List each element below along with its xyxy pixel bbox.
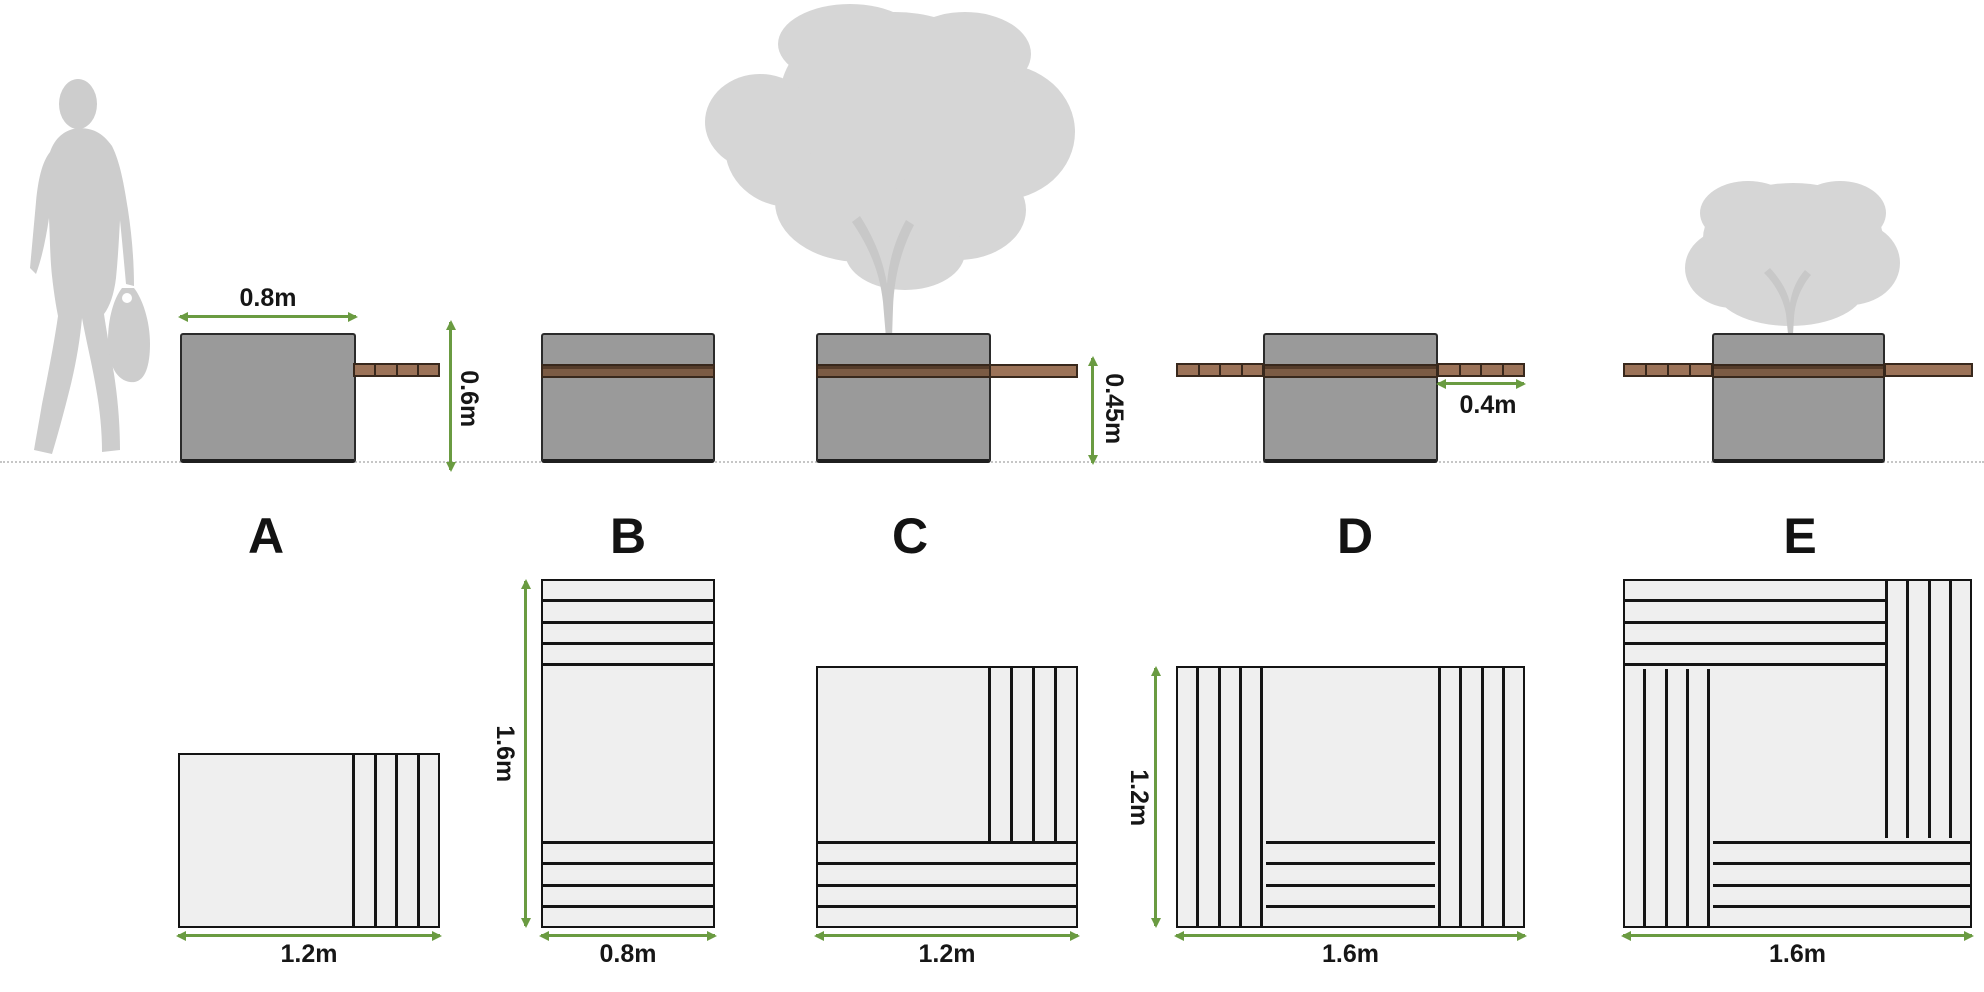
slat	[1643, 669, 1664, 926]
slat	[1667, 365, 1689, 375]
slat	[1686, 669, 1707, 926]
slat	[1178, 668, 1196, 926]
slat	[396, 365, 417, 375]
slat	[1625, 581, 1885, 599]
bench-e-left-extension	[1623, 363, 1713, 377]
slat	[543, 642, 713, 663]
planter-c-elevation	[816, 333, 991, 463]
dim-d-overhang-label: 0.4m	[1428, 392, 1548, 420]
slat	[1441, 668, 1459, 926]
slat	[543, 862, 713, 883]
dim-a-width-arrow	[180, 315, 356, 318]
slat	[1459, 365, 1481, 375]
slat	[1625, 621, 1885, 642]
option-label-b: B	[568, 511, 688, 561]
slat	[1266, 884, 1435, 905]
slat	[1625, 599, 1885, 620]
plan-d-bottom-bench-slats	[1266, 841, 1435, 926]
slat	[1196, 668, 1217, 926]
bench-d-left-extension	[1176, 363, 1264, 377]
slat	[818, 862, 1076, 883]
plan-b-top-bench-slats	[543, 581, 713, 666]
slat	[1219, 365, 1241, 375]
slat	[1054, 668, 1076, 841]
bench-e-elevation	[1712, 364, 1885, 378]
slat	[1665, 669, 1686, 926]
slat	[1439, 365, 1459, 375]
bench-a-elevation	[353, 363, 440, 377]
plan-a-bench-slats	[352, 755, 438, 926]
slat	[1239, 668, 1260, 926]
slat	[374, 755, 396, 926]
option-label-d: D	[1295, 511, 1415, 561]
slat	[1928, 581, 1949, 838]
dim-plan-c-width-arrow	[816, 934, 1078, 937]
plan-e-bottom-bench-slats	[1713, 841, 1970, 926]
slat	[1689, 365, 1711, 375]
slat	[543, 581, 713, 599]
dim-plan-b-height-label: 1.6m	[490, 709, 518, 799]
slat	[1625, 669, 1643, 926]
planter-b-elevation	[541, 333, 715, 463]
small-tree-silhouette	[1678, 168, 1906, 334]
plan-b	[541, 579, 715, 928]
bench-d-right-extension	[1437, 363, 1525, 377]
slat	[1241, 365, 1263, 375]
slat	[1502, 365, 1524, 375]
dim-plan-d-height-label: 1.2m	[1124, 753, 1152, 843]
plan-b-bottom-bench-slats	[543, 841, 713, 926]
dim-plan-e-width-arrow	[1623, 934, 1972, 937]
slat	[1032, 668, 1054, 841]
plan-d	[1176, 666, 1525, 928]
option-label-c: C	[850, 511, 970, 561]
slat	[1010, 668, 1032, 841]
slat	[1645, 365, 1667, 375]
slat	[543, 884, 713, 905]
dim-a-width-label: 0.8m	[180, 285, 356, 313]
plan-e-left-bench-slats	[1625, 669, 1710, 926]
dim-c-seat-height-label: 0.45m	[1099, 364, 1127, 454]
slat	[355, 755, 374, 926]
plan-e	[1623, 579, 1972, 928]
bench-b-elevation	[541, 364, 715, 378]
large-tree-silhouette	[700, 2, 1080, 338]
bench-c-extension	[989, 364, 1078, 378]
dim-c-seat-height-arrow	[1091, 358, 1094, 463]
option-label-a: A	[206, 511, 326, 561]
slat	[1480, 365, 1502, 375]
plan-c-right-bench-slats	[988, 668, 1076, 841]
slat	[543, 599, 713, 620]
dim-plan-d-width-arrow	[1176, 934, 1525, 937]
bench-e-right-extension	[1884, 363, 1973, 377]
scale-person-silhouette	[22, 78, 154, 462]
dim-plan-a-width-label: 1.2m	[178, 941, 440, 969]
bench-c-elevation	[816, 364, 991, 378]
slat	[1218, 668, 1239, 926]
slat	[1906, 581, 1927, 838]
dim-plan-d-height-arrow	[1154, 668, 1157, 926]
slat	[355, 365, 374, 375]
slat	[1266, 844, 1435, 862]
slat	[1502, 668, 1523, 926]
slat	[1481, 668, 1502, 926]
slat	[991, 668, 1010, 841]
planter-bench-diagram: 0.8m 0.6m 0.45m 0.4m A B C D E 1.2m 1	[0, 0, 1984, 992]
slat	[417, 755, 439, 926]
slat	[1266, 862, 1435, 883]
dim-plan-b-width-arrow	[541, 934, 715, 937]
slat	[1949, 581, 1970, 838]
bench-d-elevation	[1263, 364, 1438, 378]
dim-plan-e-width-label: 1.6m	[1623, 941, 1972, 969]
slat	[1178, 365, 1198, 375]
plan-c	[816, 666, 1078, 928]
slat	[818, 884, 1076, 905]
dim-d-overhang-arrow	[1438, 382, 1524, 385]
plan-c-bottom-bench-slats	[818, 841, 1076, 926]
dim-plan-d-width-label: 1.6m	[1176, 941, 1525, 969]
dim-plan-b-width-label: 0.8m	[541, 941, 715, 969]
plan-d-right-bench-slats	[1438, 668, 1523, 926]
slat	[1888, 581, 1906, 838]
slat	[1625, 642, 1885, 663]
option-label-e: E	[1740, 511, 1860, 561]
dim-plan-a-width-arrow	[178, 934, 440, 937]
slat	[1713, 905, 1970, 926]
plan-e-right-bench-slats	[1885, 581, 1970, 838]
plan-a	[178, 753, 440, 928]
planter-d-elevation	[1263, 333, 1438, 463]
slat	[395, 755, 417, 926]
slat	[417, 365, 438, 375]
slat	[1625, 365, 1645, 375]
slat	[543, 621, 713, 642]
slat	[1713, 884, 1970, 905]
plan-e-top-bench-slats	[1625, 581, 1885, 666]
slat	[1713, 844, 1970, 862]
slat	[374, 365, 395, 375]
slat	[1198, 365, 1220, 375]
slat	[818, 844, 1076, 862]
planter-a-elevation	[180, 333, 356, 463]
slat	[818, 905, 1076, 926]
plan-d-left-bench-slats	[1178, 668, 1263, 926]
slat	[543, 905, 713, 926]
planter-e-elevation	[1712, 333, 1885, 463]
slat	[1459, 668, 1480, 926]
dim-a-height-label: 0.6m	[454, 354, 482, 444]
slat	[1266, 905, 1435, 926]
slat	[1713, 862, 1970, 883]
dim-plan-b-height-arrow	[524, 581, 527, 926]
dim-plan-c-width-label: 1.2m	[816, 941, 1078, 969]
slat	[543, 844, 713, 862]
dim-a-height-arrow	[449, 322, 452, 470]
